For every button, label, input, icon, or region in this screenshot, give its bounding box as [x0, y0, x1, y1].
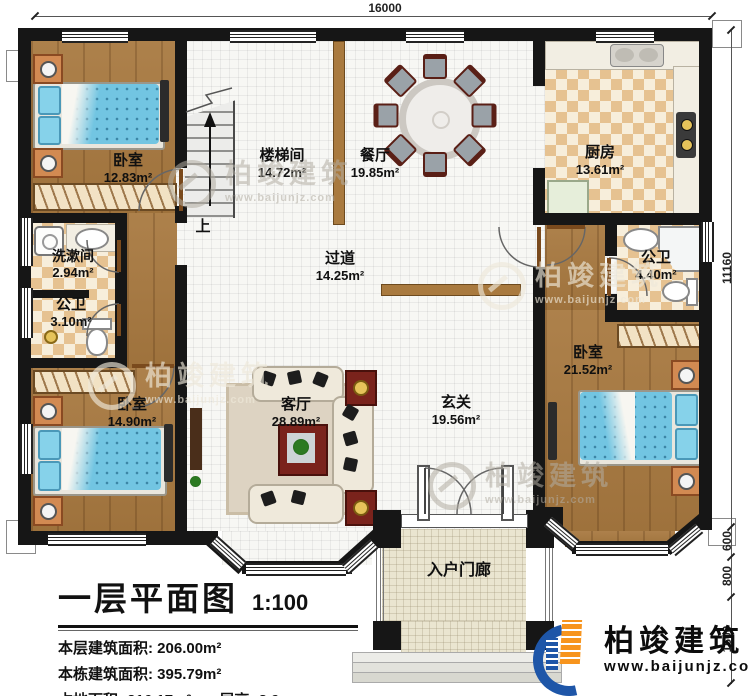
bedroom-r-hall-floor: [545, 225, 605, 310]
porch-floor-lower: [401, 621, 526, 652]
window: [48, 533, 146, 546]
brand-building-blue: [546, 638, 558, 670]
window: [20, 424, 33, 474]
wall-right: [699, 28, 712, 530]
room-label-stairwell: 楼梯间 14.72m²: [237, 147, 327, 180]
brand-logo: 柏竣建筑 www.baijunjz.com: [533, 614, 750, 686]
tv-cabinet: [190, 408, 202, 470]
scale-label: 1:100: [252, 590, 308, 616]
bay-window: [576, 543, 668, 556]
porch-steps: [352, 652, 562, 682]
room-label-foyer: 玄关 19.56m²: [411, 394, 501, 427]
wall-int: [605, 310, 699, 322]
wall-int: [175, 41, 187, 168]
step: [352, 652, 562, 663]
window: [230, 30, 316, 43]
brand-url: www.baijunjz.com: [604, 658, 750, 675]
sink-basin: [639, 48, 658, 62]
bed-sheet: [62, 84, 122, 144]
pillow: [675, 394, 698, 426]
lamp-icon: [678, 473, 695, 490]
window: [596, 30, 654, 43]
wall-int: [533, 213, 699, 225]
nightstand: [671, 360, 701, 390]
right-dim-600: 600: [720, 531, 734, 551]
hallway-floor: [127, 213, 177, 368]
room-label-bedroom-bl: 卧室 14.90m²: [87, 396, 177, 429]
washroom-sink: [75, 228, 109, 250]
room-label-corridor: 过道 14.25m²: [295, 250, 385, 283]
nightstand: [33, 496, 63, 526]
floor-plan: 16000 11160 600 800 1600 上: [0, 0, 750, 696]
pillow: [38, 116, 61, 145]
plant-icon: [190, 476, 201, 487]
top-dimension-label: 16000: [350, 1, 420, 15]
pillow: [675, 428, 698, 460]
dining-chair: [423, 54, 447, 79]
lamp-icon: [40, 503, 57, 520]
lamp-icon: [353, 500, 369, 516]
stairs-up-label: 上: [188, 218, 218, 236]
nightstand: [33, 54, 63, 84]
room-label-bedroom-tl: 卧室 12.83m²: [83, 152, 173, 185]
stove: [676, 112, 696, 158]
info-row: 本层建筑面积: 206.00m²: [58, 637, 358, 658]
kitchen-sink: [610, 44, 664, 67]
title-underline: [58, 625, 358, 628]
burner: [681, 119, 693, 131]
sofa-cushion: [287, 370, 302, 385]
wood-screen-horizontal: [381, 284, 521, 296]
page-title: 一层平面图: [58, 572, 238, 620]
fridge: [547, 180, 589, 215]
brand-name: 柏竣建筑: [604, 625, 750, 658]
coffee-table: [278, 424, 328, 476]
nightstand: [33, 148, 63, 178]
tv-panel: [164, 424, 173, 482]
right-dim-11160: 11160: [720, 252, 734, 284]
lamp-icon: [678, 367, 695, 384]
wardrobe: [33, 370, 135, 394]
info-row: 本栋建筑面积: 395.79m²: [58, 663, 358, 684]
dining-chair: [423, 152, 447, 177]
dining-chair: [374, 104, 399, 128]
dim-tick: [708, 12, 716, 20]
floor-drain: [44, 330, 58, 344]
room-label-washroom: 洗漱间 2.94m²: [34, 248, 112, 280]
wall-int: [31, 213, 127, 223]
room-label-living: 客厅 28.89m²: [251, 396, 341, 429]
dining-chair: [472, 104, 497, 128]
window: [701, 222, 714, 262]
tv-panel: [548, 402, 557, 460]
lamp-icon: [40, 61, 57, 78]
burner: [681, 139, 693, 151]
wall-int: [533, 168, 545, 213]
bed-sheet: [580, 392, 635, 460]
door-jamb: [417, 465, 430, 521]
sofa-cushion: [343, 457, 358, 472]
room-label-bedroom-r: 卧室 21.52m²: [543, 344, 633, 377]
nightstand: [33, 396, 63, 426]
top-dimension-line: [35, 16, 712, 17]
wall-int: [115, 223, 127, 368]
title-underline-thin: [58, 630, 358, 631]
pillow: [38, 430, 61, 460]
room-label-dining: 餐厅 19.85m²: [330, 147, 420, 180]
dining-table-center: [432, 111, 450, 129]
room-label-toilet-left: 公卫 3.10m²: [32, 296, 110, 329]
room-label-kitchen: 厨房 13.61m²: [555, 144, 645, 177]
wall-int: [605, 294, 617, 310]
wall-int: [31, 358, 127, 368]
room-label-porch: 入户门廊: [398, 562, 520, 581]
step: [352, 663, 562, 673]
wardrobe: [33, 183, 177, 211]
staircase: [185, 98, 235, 218]
lamp-icon: [40, 403, 57, 420]
window: [20, 218, 33, 266]
tv-panel: [160, 80, 169, 142]
brand-logo-icon: [533, 614, 595, 686]
door-jamb: [501, 465, 514, 521]
pillow: [38, 86, 61, 115]
pillow: [38, 461, 61, 491]
room-label-bath-right: 公卫 4.40m²: [612, 249, 700, 282]
right-dim-800: 800: [720, 566, 734, 586]
porch-rail: [376, 548, 384, 621]
porch-pillar: [373, 621, 401, 650]
sink-basin: [615, 48, 634, 62]
info-row: 占地面积: 216.17m² 层高: 3.9m: [58, 689, 358, 696]
window: [62, 30, 128, 43]
toilet-bowl: [662, 281, 690, 302]
title-block: 一层平面图 1:100 本层建筑面积: 206.00m² 本栋建筑面积: 395…: [58, 572, 358, 696]
step: [352, 673, 562, 683]
wall-int: [533, 41, 545, 86]
wall-int: [175, 206, 187, 223]
wood-partition-vertical: [333, 41, 345, 225]
window: [406, 30, 464, 43]
nightstand: [671, 466, 701, 496]
wall-int: [533, 267, 545, 517]
lamp-icon: [40, 155, 57, 172]
porch-rail: [545, 548, 553, 621]
toilet-bowl: [86, 328, 108, 356]
porch-pillar: [373, 510, 401, 548]
side-table: [345, 370, 377, 406]
bed-sheet: [62, 428, 122, 490]
lamp-icon: [353, 380, 369, 396]
brand-building-orange: [560, 620, 582, 664]
plant-icon: [293, 439, 309, 455]
